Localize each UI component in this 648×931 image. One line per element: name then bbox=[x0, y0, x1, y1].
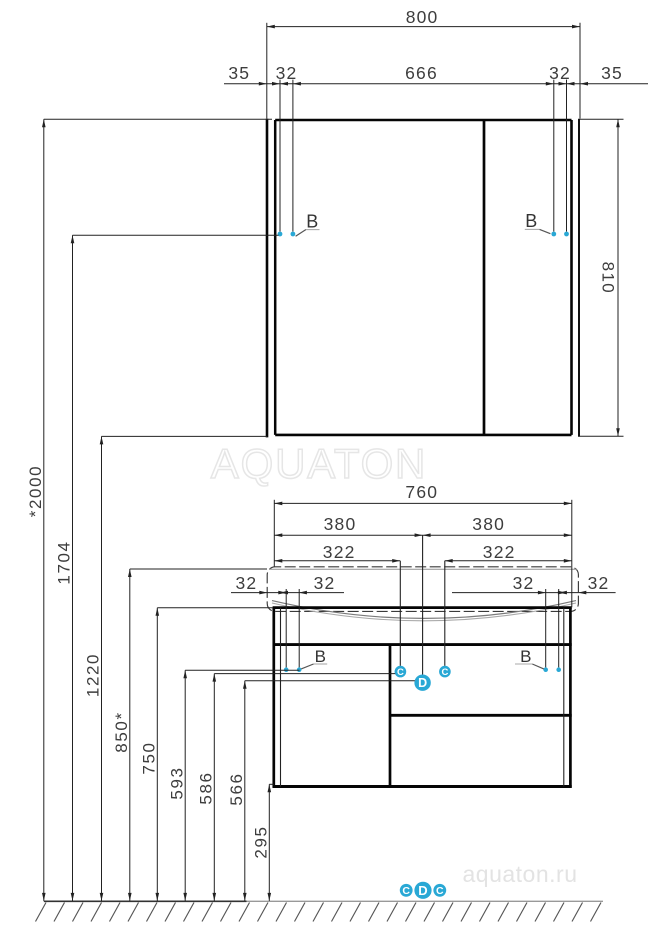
svg-text:*2000: *2000 bbox=[26, 465, 45, 517]
svg-text:B: B bbox=[525, 211, 537, 231]
svg-text:C: C bbox=[402, 885, 410, 897]
svg-text:1704: 1704 bbox=[55, 540, 74, 584]
svg-text:AQUATON: AQUATON bbox=[211, 440, 427, 487]
svg-text:32: 32 bbox=[513, 573, 535, 593]
svg-text:32: 32 bbox=[549, 63, 571, 83]
svg-text:32: 32 bbox=[276, 63, 298, 83]
svg-text:760: 760 bbox=[405, 482, 438, 502]
svg-text:C: C bbox=[441, 667, 448, 678]
svg-text:750: 750 bbox=[139, 741, 158, 774]
svg-text:D: D bbox=[418, 883, 427, 898]
svg-text:800: 800 bbox=[406, 7, 439, 27]
svg-text:380: 380 bbox=[324, 514, 357, 534]
svg-text:D: D bbox=[418, 676, 427, 690]
svg-text:35: 35 bbox=[228, 63, 250, 83]
svg-text:1220: 1220 bbox=[84, 653, 103, 697]
svg-text:B: B bbox=[315, 647, 326, 666]
svg-text:35: 35 bbox=[601, 63, 623, 83]
svg-text:C: C bbox=[436, 885, 444, 897]
svg-text:B: B bbox=[306, 212, 318, 232]
svg-text:295: 295 bbox=[251, 825, 270, 858]
svg-text:C: C bbox=[397, 667, 404, 678]
svg-text:380: 380 bbox=[472, 514, 505, 534]
svg-text:850*: 850* bbox=[112, 711, 131, 752]
svg-text:566: 566 bbox=[227, 772, 246, 805]
svg-text:322: 322 bbox=[323, 542, 356, 562]
svg-text:322: 322 bbox=[483, 542, 516, 562]
svg-text:593: 593 bbox=[167, 766, 186, 799]
svg-text:810: 810 bbox=[599, 262, 618, 295]
svg-text:666: 666 bbox=[405, 63, 438, 83]
svg-text:aquaton.ru: aquaton.ru bbox=[463, 861, 578, 887]
svg-text:32: 32 bbox=[588, 573, 610, 593]
svg-text:586: 586 bbox=[196, 771, 215, 804]
svg-text:B: B bbox=[520, 647, 531, 666]
svg-text:32: 32 bbox=[235, 573, 257, 593]
svg-text:32: 32 bbox=[314, 573, 336, 593]
